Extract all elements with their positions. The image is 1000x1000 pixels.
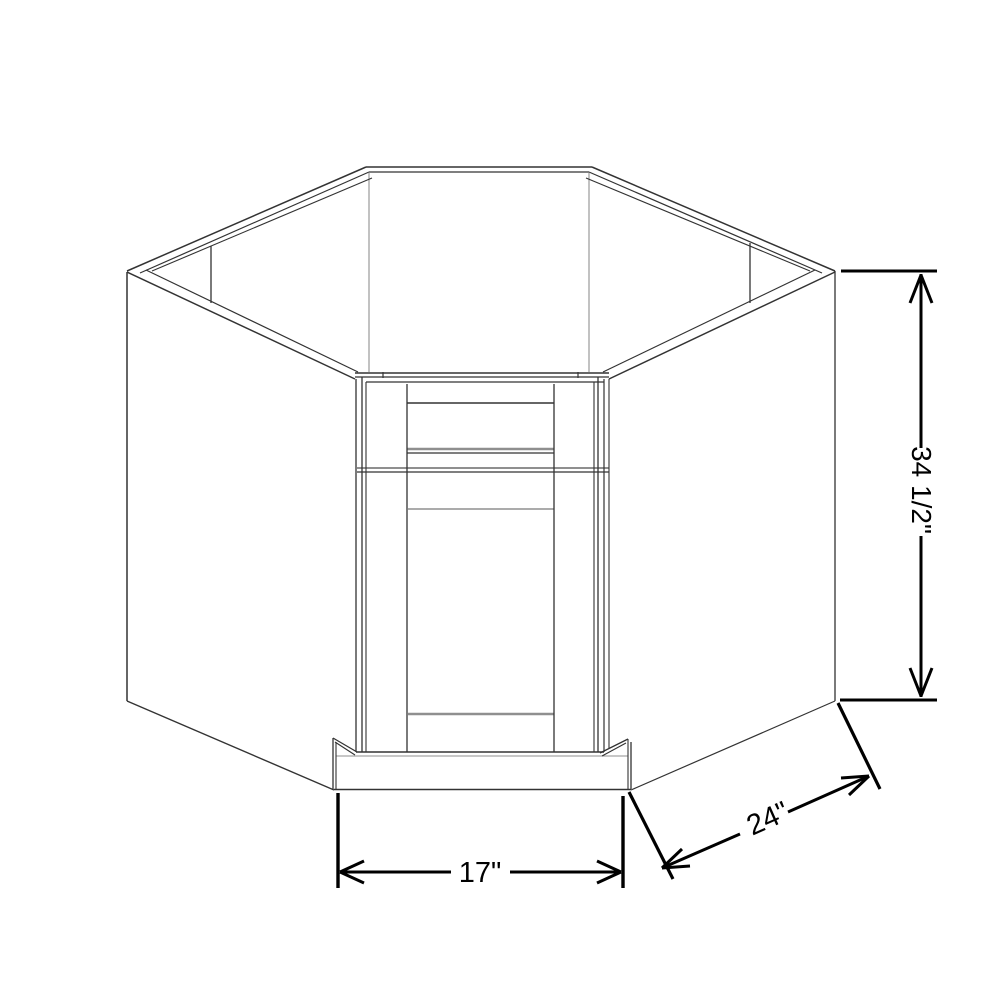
rim-back-right-inner xyxy=(586,178,810,271)
cabinet-interior-lines xyxy=(336,173,628,756)
rim-back-left-inner xyxy=(152,178,372,271)
arrow-left-wing-2 xyxy=(340,872,364,883)
arrow-left-wing-1 xyxy=(340,861,364,872)
drawing-canvas: 17" 24" 34 1/2" xyxy=(0,0,1000,1000)
right-panel-bottom-edge xyxy=(631,701,835,790)
arrow-lower-wing-1 xyxy=(662,866,690,868)
arrow-right-wing-1 xyxy=(597,861,621,872)
toe-miter-left-outer xyxy=(333,738,357,752)
rim-front-left-inner xyxy=(146,270,358,372)
rim-back-left-outer xyxy=(127,167,366,271)
rim-back-left-mid xyxy=(140,172,369,273)
dimension-lines xyxy=(338,271,937,888)
dim-line-upper-seg xyxy=(788,776,869,812)
dimension-side-depth xyxy=(629,703,880,879)
rim-front-right-outer xyxy=(609,272,835,379)
arrow-right-wing-2 xyxy=(597,872,621,883)
arrow-top-wing-1 xyxy=(910,275,921,303)
dim-line-lower-seg xyxy=(662,834,740,868)
side-depth-label: 24" xyxy=(742,796,794,843)
rim-back-right-mid xyxy=(589,172,822,273)
rim-front-left-outer xyxy=(127,272,355,379)
rim-front-right-inner xyxy=(603,270,815,372)
rim-back-right-outer xyxy=(592,167,835,271)
left-panel-bottom-edge xyxy=(127,701,334,790)
cabinet-outline xyxy=(127,167,835,790)
height-label: 34 1/2" xyxy=(906,446,937,534)
arrow-upper-wing-1 xyxy=(841,776,869,778)
arrow-top-wing-2 xyxy=(921,275,932,303)
arrow-bottom-wing-2 xyxy=(921,668,932,696)
arrow-bottom-wing-1 xyxy=(910,668,921,696)
corner-cabinet-diagram: 17" 24" 34 1/2" xyxy=(0,0,1000,1000)
front-width-label: 17" xyxy=(459,857,502,889)
